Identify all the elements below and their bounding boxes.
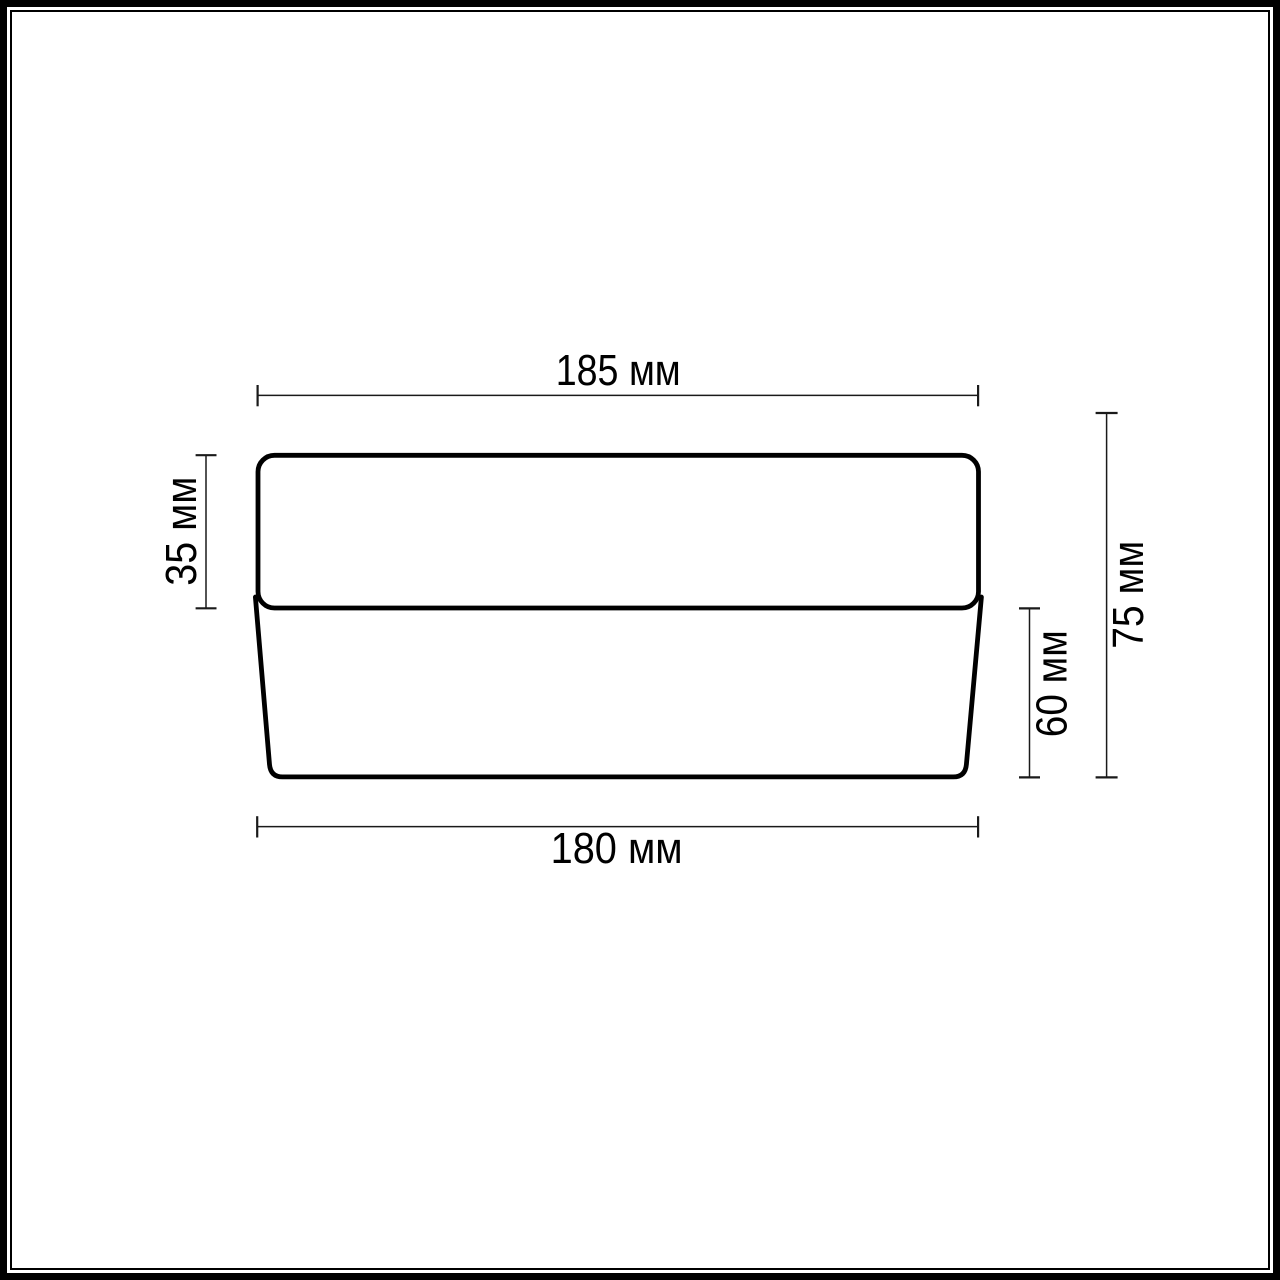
svg-text:60 мм: 60 мм: [1028, 630, 1077, 737]
svg-text:35 мм: 35 мм: [157, 477, 206, 586]
svg-text:180 мм: 180 мм: [551, 824, 683, 873]
svg-text:75 мм: 75 мм: [1104, 541, 1153, 649]
svg-text:185 мм: 185 мм: [556, 346, 681, 395]
